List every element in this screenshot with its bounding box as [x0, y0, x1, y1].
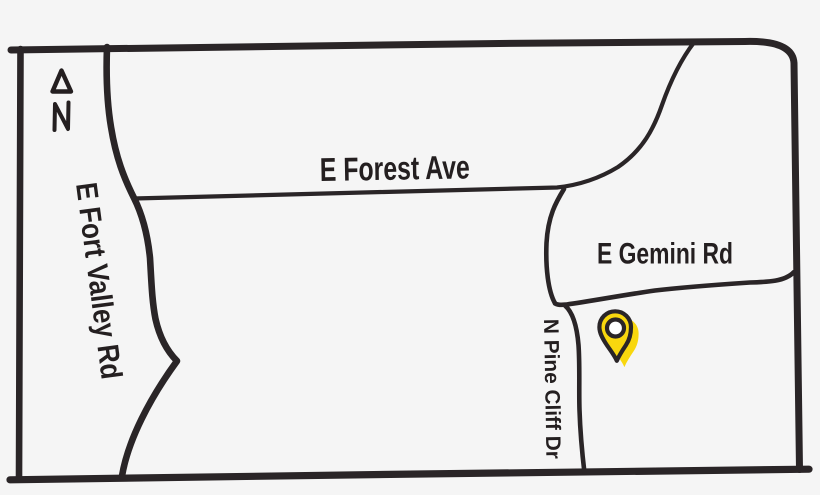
svg-text:N Pine Cliff Dr: N Pine Cliff Dr: [539, 319, 564, 459]
svg-text:E Gemini Rd: E Gemini Rd: [597, 238, 733, 271]
svg-text:E Forest Ave: E Forest Ave: [319, 148, 470, 188]
